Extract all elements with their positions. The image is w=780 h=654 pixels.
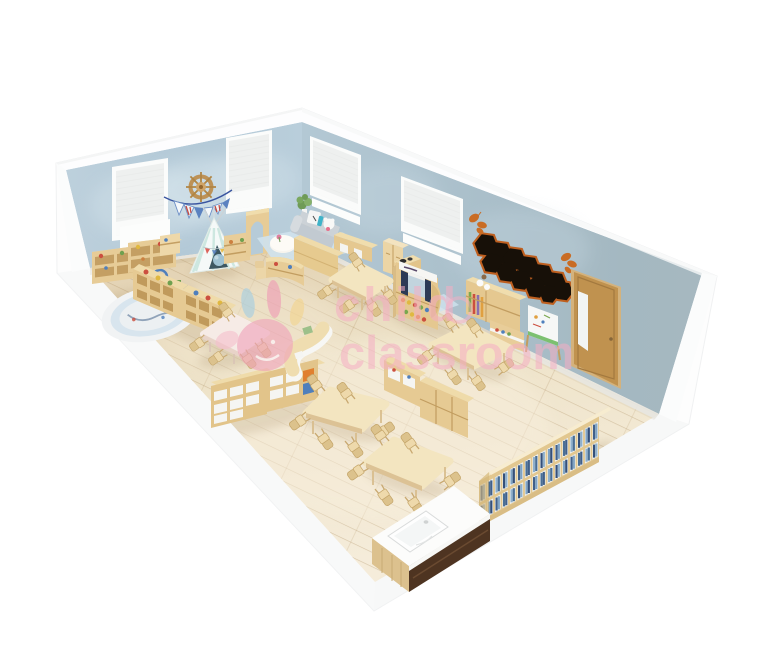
svg-text:classroom: classroom	[339, 326, 574, 379]
svg-text:child: child	[334, 279, 459, 332]
